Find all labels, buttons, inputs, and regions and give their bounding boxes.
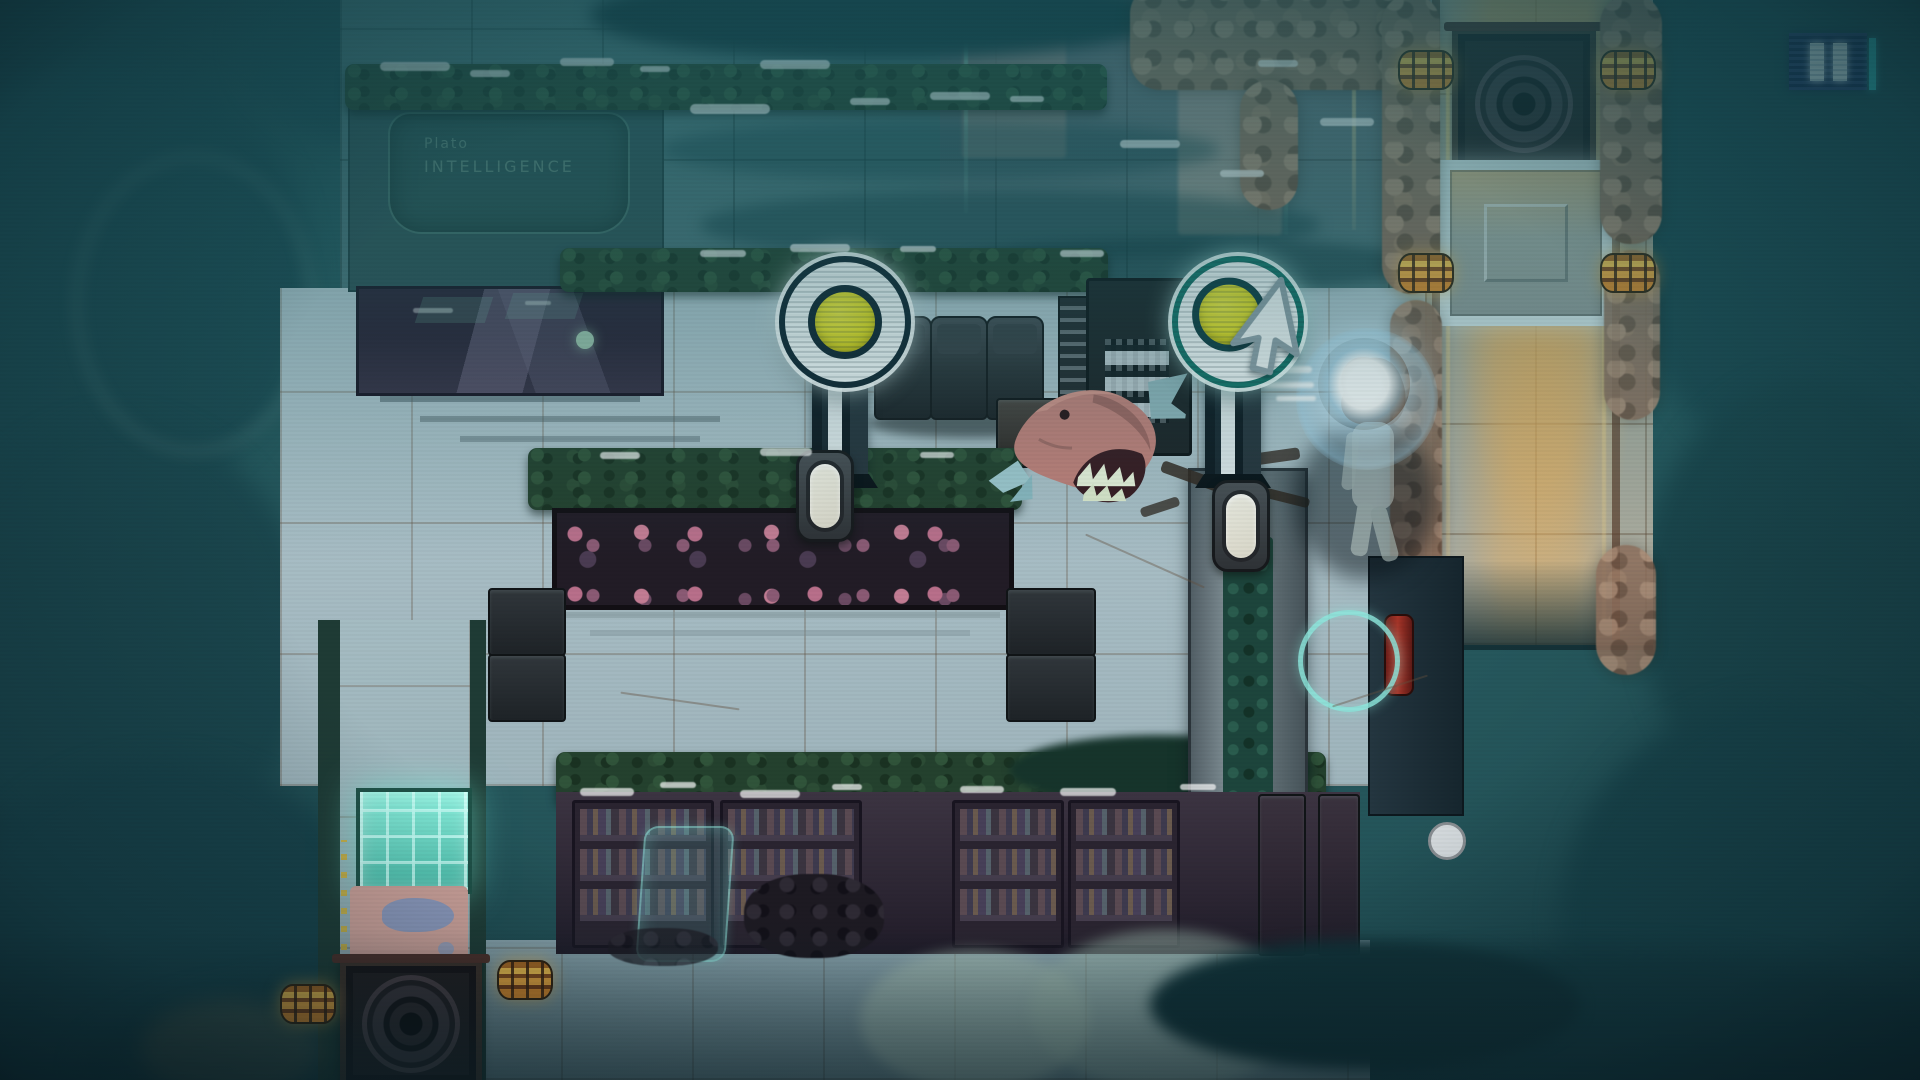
sign-line2: INTELLIGENCE <box>424 155 575 179</box>
moon-icon <box>576 331 594 349</box>
leaf-pile <box>744 874 884 958</box>
bookcase <box>1068 800 1180 948</box>
books-row <box>728 809 854 841</box>
books-row <box>960 849 1056 881</box>
rail-lights <box>341 840 347 950</box>
pipe-shadow <box>560 612 1000 618</box>
sign-text: Plato INTELLIGENCE <box>424 134 575 179</box>
railing-shadow <box>380 396 640 402</box>
night-mural <box>356 286 664 396</box>
coral-column <box>1596 545 1656 675</box>
pause-button[interactable] <box>1789 33 1867 90</box>
wall-clock <box>1428 822 1466 860</box>
hanging-coral <box>1240 80 1298 210</box>
cursor-pointer <box>1192 284 1304 388</box>
books-row <box>1076 809 1172 841</box>
crate-stack <box>488 588 566 656</box>
books-row <box>960 889 1056 921</box>
coral-column <box>1382 0 1440 294</box>
pause-icon <box>1810 43 1824 81</box>
crate-stack <box>488 654 566 722</box>
coral-column <box>1600 0 1662 244</box>
planter-box <box>552 508 1014 610</box>
coral-column <box>1604 250 1660 420</box>
pipe-shadow <box>590 630 970 636</box>
timeline-button[interactable] <box>779 256 911 388</box>
sign-panel: Plato INTELLIGENCE <box>388 112 630 234</box>
pillar-moss <box>1223 537 1273 799</box>
waiting-seat <box>930 316 988 420</box>
cursor-arrow-icon <box>1182 273 1313 398</box>
railing-shadow <box>420 416 720 422</box>
wall-pillar <box>1318 794 1360 956</box>
books-row <box>1076 889 1172 921</box>
machine-core <box>362 975 460 1073</box>
bookcase <box>952 800 1064 948</box>
glow-orb <box>1318 338 1410 430</box>
hedge-top <box>345 64 1107 110</box>
crate-stack <box>1006 588 1096 656</box>
bush-row <box>1150 940 1580 1070</box>
goal-pad[interactable] <box>356 788 472 894</box>
mural-glow-tile <box>415 297 493 323</box>
railing-shadow <box>460 436 700 442</box>
floor-marker-circle[interactable] <box>1298 610 1400 712</box>
books-row <box>1076 849 1172 881</box>
puddle <box>382 898 454 932</box>
pause-button-edge <box>1869 38 1876 90</box>
pause-icon <box>1833 43 1847 81</box>
shark-enemy <box>982 342 1193 529</box>
books-row <box>960 809 1056 841</box>
machine-core <box>1475 55 1573 153</box>
portal-machine <box>1452 28 1596 180</box>
portal-machine <box>340 960 482 1080</box>
sign-line1: Plato <box>424 134 575 155</box>
crate-stack <box>1006 654 1096 722</box>
light-strip <box>1446 70 1450 620</box>
wall-pillar <box>1258 794 1306 956</box>
ripple-shadow <box>660 120 1220 180</box>
motion-streak <box>1276 396 1316 401</box>
corridor-wall <box>318 620 340 1080</box>
leaf-pile <box>608 928 718 966</box>
button-post <box>812 372 868 478</box>
shark-graphic <box>982 342 1193 529</box>
selected-tile[interactable] <box>1440 160 1612 326</box>
game-stage: Plato INTELLIGENCE <box>0 0 1920 1080</box>
hedge-planter-top <box>528 448 1022 510</box>
mural-glow-tile <box>505 293 583 319</box>
scanline-overlay <box>779 256 911 388</box>
